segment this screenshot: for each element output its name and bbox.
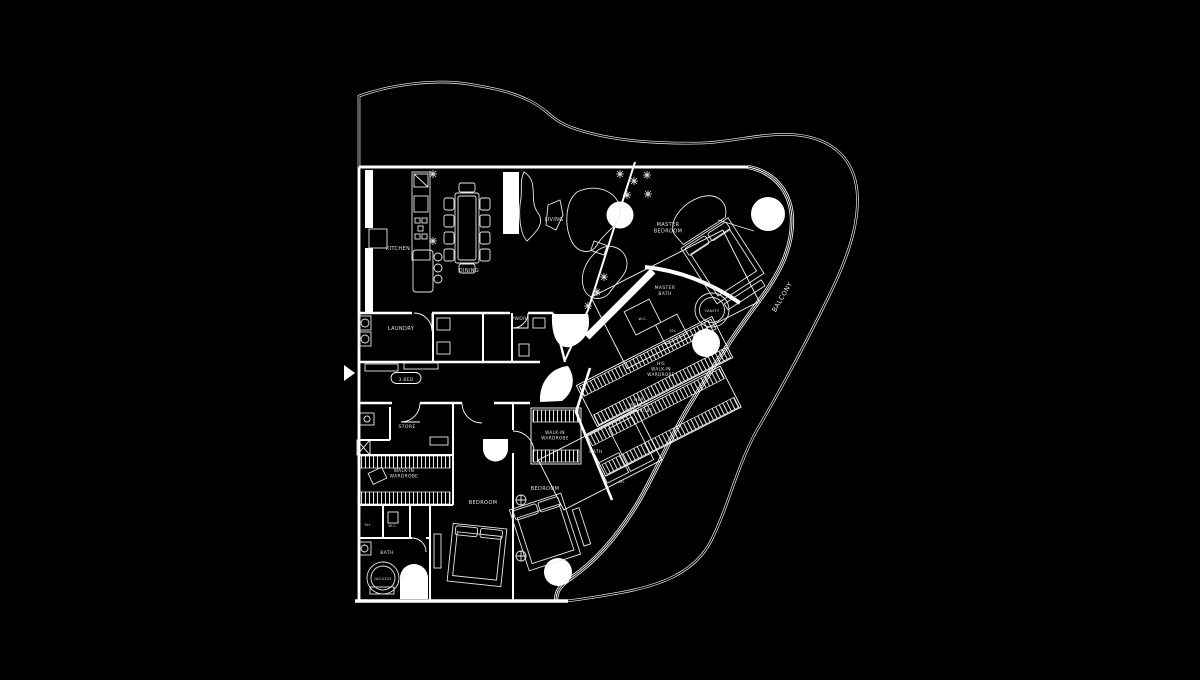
room-label-vanity: VANITY xyxy=(705,309,720,313)
shelf xyxy=(434,534,441,568)
coffee-table xyxy=(591,241,608,255)
bar-stool xyxy=(434,264,442,272)
kitchen xyxy=(412,172,442,292)
headboard xyxy=(664,187,730,246)
room-label-pwdr: PWDR xyxy=(511,316,526,322)
room-label-sh-left: SH. xyxy=(364,523,371,527)
closet-fixtures xyxy=(437,318,450,354)
room-label-laundry: LAUNDRY xyxy=(388,326,415,332)
arched-niche xyxy=(483,439,508,461)
sculpted-partition xyxy=(520,172,541,241)
room-label-master-bath: MASTERBATH xyxy=(655,285,676,297)
floor-plan: KITCHENDININGLIVINGMASTERBEDROOMMASTERBA… xyxy=(0,0,1200,680)
door-swings xyxy=(401,313,534,552)
room-label-his-walkin-wardrobe: HISWALK-INWARDROBE xyxy=(647,361,674,377)
room-label-living: LIVING xyxy=(545,217,564,223)
room-label-bedroom-right: BEDROOM xyxy=(531,486,560,492)
console-table xyxy=(404,363,438,369)
room-label-sh-master: SH. xyxy=(669,329,676,333)
room-label-walkin-wardrobe-left: WALK-INWARDROBE xyxy=(390,468,419,480)
wardrobe-shelving xyxy=(533,410,579,422)
wardrobe-shelving xyxy=(533,450,579,462)
laundry-fixtures xyxy=(359,316,371,346)
bedroom-center-furniture xyxy=(434,523,507,586)
room-label-wc-left: W.C. xyxy=(388,524,397,528)
room-label-unit-tag: 3 BED xyxy=(398,377,413,383)
kitchen-counter xyxy=(412,172,430,260)
floor-plan-canvas: KITCHENDININGLIVINGMASTERBEDROOMMASTERBA… xyxy=(0,0,1200,680)
wardrobe-shelving xyxy=(358,456,450,468)
plants xyxy=(429,170,652,310)
wardrobe-shelving xyxy=(358,492,450,504)
bar-stool xyxy=(434,253,442,261)
side-table xyxy=(546,200,563,230)
dining-table xyxy=(455,193,479,263)
room-label-dining: DINING xyxy=(459,268,479,274)
bench xyxy=(430,437,448,445)
room-label-master-bedroom: MASTERBEDROOM xyxy=(654,222,683,235)
room-label-bath-bed2: BATH xyxy=(589,449,603,455)
feature-wall xyxy=(503,172,519,234)
bar-stool xyxy=(434,275,442,283)
chair xyxy=(368,467,387,484)
arched-niche xyxy=(400,564,428,599)
room-label-jacuzzi: JACUZZI xyxy=(374,577,392,581)
room-label-wc-master: W.C. xyxy=(638,317,647,321)
dining xyxy=(444,172,541,273)
room-label-walkin-wardrobe-bed2: WALK-INWARDROBE xyxy=(541,430,568,440)
wardrobe-left xyxy=(358,456,450,504)
dining-chairs xyxy=(444,183,490,273)
room-label-kitchen: KITCHEN xyxy=(386,246,410,252)
room-label-bedroom-center: BEDROOM xyxy=(469,500,498,506)
room-label-balcony: BALCONY xyxy=(770,281,794,314)
entry-arrow-icon xyxy=(344,365,355,381)
column xyxy=(544,558,572,586)
room-label-bath-left: BATH xyxy=(380,550,394,556)
room-label-store: STORE xyxy=(398,424,415,430)
console-table xyxy=(365,364,398,371)
room-label-sh-bed2: SH. xyxy=(618,480,625,484)
console xyxy=(572,508,590,546)
column xyxy=(751,197,785,231)
master-service-block xyxy=(530,230,798,476)
